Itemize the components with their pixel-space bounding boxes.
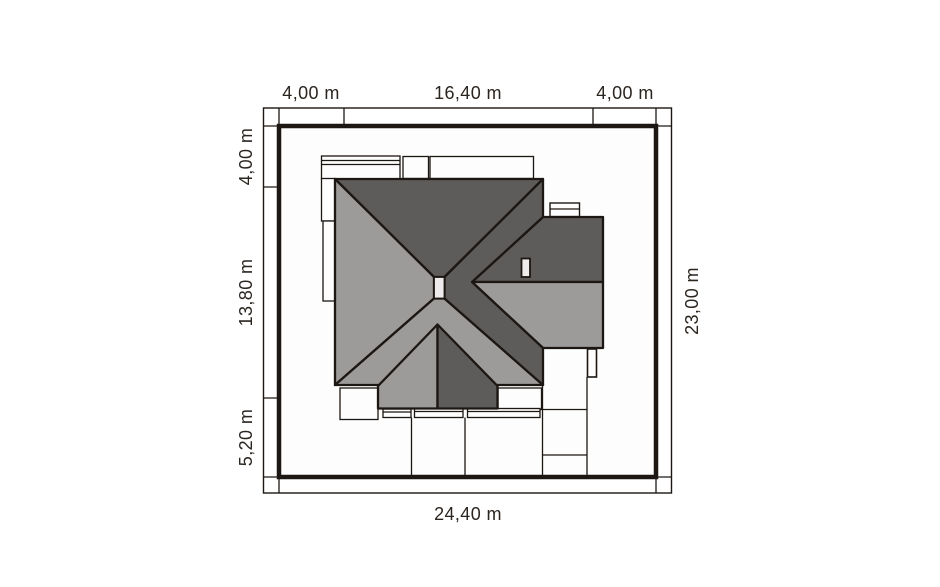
garage-roof-vent [522, 259, 531, 278]
dim-right: 23,00 m [682, 267, 702, 335]
entry-step-3 [468, 409, 541, 418]
dim-left-middle: 13,80 m [236, 259, 256, 327]
north-terrace-left [322, 156, 401, 179]
entry-terrace-left [340, 388, 378, 420]
center-chimney [434, 277, 445, 299]
dim-top-left: 4,00 m [282, 83, 339, 103]
dim-left-lower: 5,20 m [236, 409, 256, 466]
dim-bottom: 24,40 m [434, 504, 502, 524]
dim-left-upper: 4,00 m [236, 128, 256, 185]
entry-step-2 [415, 409, 464, 418]
ruler-ticks-right [656, 126, 672, 477]
garage-chimney [550, 203, 580, 217]
entry-terrace-right [498, 388, 542, 410]
dim-top-center: 16,40 m [434, 83, 502, 103]
dim-top-right: 4,00 m [596, 83, 653, 103]
ruler-ticks-top [279, 108, 656, 126]
north-terrace-small [403, 157, 429, 179]
site-plan: 4,00 m 16,40 m 4,00 m 4,00 m 13,80 m 5,2… [0, 0, 940, 587]
west-terrace-upper [322, 179, 336, 222]
entry-step-1 [383, 409, 411, 418]
north-terrace-right [430, 157, 534, 179]
downpipe [588, 349, 597, 377]
site-plan-svg: 4,00 m 16,40 m 4,00 m 4,00 m 13,80 m 5,2… [0, 0, 940, 587]
ruler-ticks-left [264, 126, 280, 477]
west-terrace-lower [323, 221, 335, 301]
ruler-ticks-bottom [279, 477, 656, 493]
